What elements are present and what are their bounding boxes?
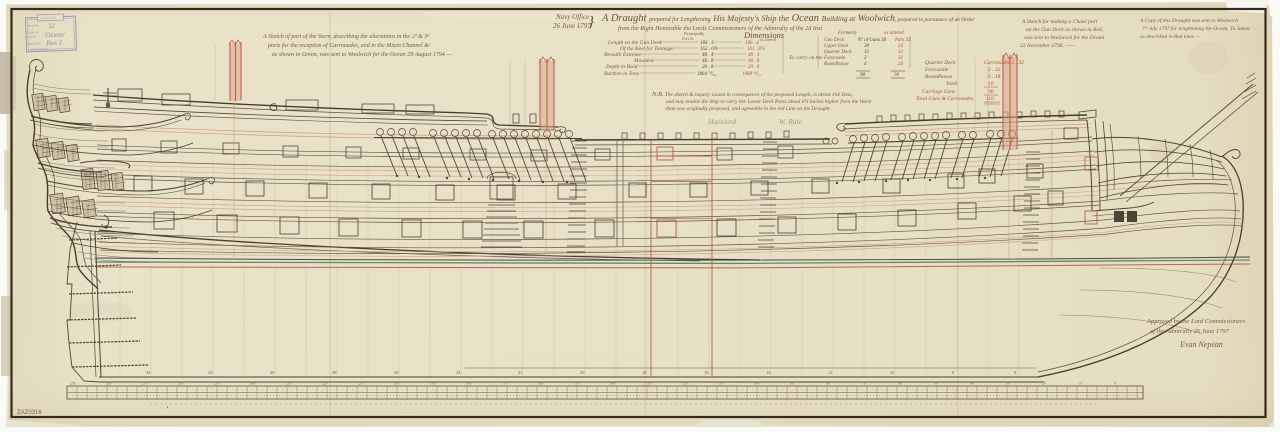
svg-text:Of the Keel for Tonnage: Of the Keel for Tonnage (620, 45, 674, 52)
svg-text:6 . 18: 6 . 18 (988, 74, 1001, 80)
svg-text:Gun Deck: Gun Deck (824, 38, 845, 43)
svg-text:on the Gun Deck as shown in Re: on the Gun Deck as shown in Red, (1026, 27, 1104, 33)
svg-text:184 . 5: 184 . 5 (700, 41, 714, 46)
svg-text:32: 32 (47, 22, 56, 30)
svg-text:': ' (166, 405, 168, 414)
svg-text:220: 220 (322, 382, 328, 386)
svg-text:0: 0 (1114, 382, 1116, 386)
svg-text:270: 270 (142, 382, 148, 386)
svg-text:98: 98 (860, 73, 866, 78)
svg-text:14: 14 (766, 370, 771, 375)
svg-text:ZAZ0316: ZAZ0316 (17, 410, 42, 416)
svg-text:Quarter Deck: Quarter Deck (824, 50, 852, 55)
svg-text:12: 12 (864, 50, 870, 55)
svg-text:as shown in Green, was sent to: as shown in Green, was sent to Woolwich … (272, 51, 452, 58)
svg-text:Box 1: Box 1 (46, 39, 62, 48)
svg-text:240: 240 (250, 382, 256, 386)
svg-text:140: 140 (610, 382, 616, 386)
svg-text:Roundhouse: Roundhouse (924, 74, 953, 80)
svg-text:W. Rule: W. Rule (779, 117, 803, 126)
svg-text:32: 32 (898, 56, 904, 61)
svg-text:110: 110 (986, 96, 994, 102)
svg-text:48 . 0: 48 . 0 (702, 59, 714, 64)
svg-text:161 . 8⅞: 161 . 8⅞ (747, 47, 765, 52)
svg-text:22 November 1796. ——: 22 November 1796. —— (1020, 43, 1075, 49)
svg-text:70: 70 (862, 382, 866, 386)
svg-text:30: 30 (270, 370, 275, 375)
svg-text:1864 ⁷⁹⁄₉₄: 1864 ⁷⁹⁄₉₄ (697, 71, 716, 77)
svg-text:Burthen in Tons: Burthen in Tons (604, 71, 639, 77)
svg-text:Hanslord: Hanslord (707, 117, 736, 126)
svg-text:Feet In: Feet In (681, 36, 693, 41)
svg-text:than was originally proposed,: than was originally proposed, and agreea… (666, 106, 831, 112)
svg-text:100: 100 (754, 382, 760, 386)
svg-text:12: 12 (898, 50, 904, 55)
svg-text:Neg Size: Neg Size (28, 41, 41, 45)
svg-text:40: 40 (970, 382, 974, 386)
svg-text:48 . 4: 48 . 4 (702, 53, 714, 58)
svg-text:20 . 6: 20 . 6 (702, 65, 714, 70)
svg-text:180: 180 (466, 382, 472, 386)
svg-text:A Sketch for making a Chase po: A Sketch for making a Chase port (1021, 18, 1098, 25)
svg-text:Total: Total (946, 81, 958, 87)
svg-text:CURATOR: CURATOR (40, 16, 56, 21)
svg-text:150: 150 (574, 382, 580, 386)
svg-text:90: 90 (790, 382, 794, 386)
svg-text:152 . 6¾: 152 . 6¾ (700, 47, 718, 52)
svg-text:28: 28 (332, 370, 337, 375)
svg-text:200: 200 (394, 382, 400, 386)
svg-text:280: 280 (106, 382, 112, 386)
svg-text:Carronades 2 . 32: Carronades 2 . 32 (984, 60, 1024, 66)
svg-text:160: 160 (538, 382, 544, 386)
svg-text:170: 170 (502, 382, 508, 386)
svg-text:24: 24 (456, 370, 461, 375)
svg-text:WOOLWICH: WOOLWICH (30, 47, 49, 52)
svg-text:ports for the reception of Car: ports for the reception of Carronades, a… (267, 42, 431, 49)
svg-text:1988 ⁶³⁄₉₄: 1988 ⁶³⁄₉₄ (742, 71, 761, 77)
svg-text:110: 110 (718, 382, 723, 386)
svg-text:20: 20 (580, 370, 585, 375)
svg-text:of the Admiralty 26 June 1797: of the Admiralty 26 June 1797 (1150, 328, 1230, 335)
svg-text:A Sketch of part of the Stern,: A Sketch of part of the Stern, describin… (262, 33, 430, 40)
svg-text:7ᵗʰ July 1797 for lengthening: 7ᵗʰ July 1797 for lengthening the Ocean.… (1142, 25, 1250, 32)
svg-text:Forecastle: Forecastle (924, 67, 949, 73)
svg-text:N.B. The sketch & inquiry iss: N.B. The sketch & inquiry issued in cons… (651, 91, 853, 98)
svg-text:from the Right Honorable the L: from the Right Honorable the Lords Commi… (618, 25, 822, 32)
svg-text:Pdrs 32: Pdrs 32 (894, 38, 911, 43)
svg-text:10: 10 (1078, 382, 1082, 386)
svg-text:290: 290 (70, 382, 76, 386)
svg-text:22: 22 (518, 370, 523, 375)
svg-text:was sent to Woolwich for the O: was sent to Woolwich for the Ocean (1024, 34, 1104, 41)
svg-text:30: 30 (1006, 382, 1010, 386)
svg-text:60: 60 (898, 382, 902, 386)
svg-text:Approved by the Lord Commissio: Approved by the Lord Commissioners (1146, 318, 1246, 325)
svg-text:16: 16 (704, 370, 709, 375)
svg-text:Carriage Guns: Carriage Guns (922, 89, 955, 95)
svg-text:80: 80 (826, 382, 830, 386)
svg-text:Evan Nepean: Evan Nepean (1179, 340, 1223, 349)
svg-text:as described in Red lines —: as described in Red lines — (1140, 34, 1200, 40)
svg-text:Forecastle: Forecastle (823, 56, 846, 61)
svg-text:Formerly: Formerly (837, 31, 858, 36)
svg-text:24: 24 (898, 62, 904, 67)
svg-text:report: report (28, 34, 37, 38)
svg-text:130: 130 (646, 382, 652, 386)
svg-text:48 . 4: 48 . 4 (748, 53, 760, 58)
svg-text:A Copy of this Draught was sen: A Copy of this Draught was sent to Woolw… (1139, 17, 1238, 24)
svg-text:24: 24 (898, 44, 904, 49)
svg-text:250: 250 (214, 382, 220, 386)
svg-text:12: 12 (828, 370, 833, 375)
svg-text:Total Guns & Carronades: Total Guns & Carronades (916, 96, 973, 102)
svg-text:98: 98 (988, 89, 994, 95)
svg-text:26 June 1797: 26 June 1797 (553, 22, 591, 30)
svg-text:Quarter Deck: Quarter Deck (925, 60, 956, 66)
svg-text:260: 260 (178, 382, 184, 386)
svg-text:10: 10 (988, 81, 994, 87)
svg-text:190: 190 (430, 382, 436, 386)
svg-text:20 . 6: 20 . 6 (748, 65, 760, 70)
svg-text:Upper Deck: Upper Deck (824, 44, 849, 49)
svg-text:}: } (588, 14, 594, 30)
svg-text:10: 10 (890, 370, 895, 375)
svg-text:30: 30 (864, 44, 870, 49)
svg-text:26: 26 (394, 370, 399, 375)
svg-text:2 . 32: 2 . 32 (988, 67, 1001, 73)
svg-text:as altered: as altered (884, 31, 904, 36)
svg-text:Navy Office: Navy Office (555, 13, 589, 21)
svg-text:18: 18 (642, 370, 647, 375)
svg-text:as altered: as altered (760, 37, 777, 42)
svg-text:98: 98 (894, 73, 900, 78)
svg-text:Nº of Guns 30: Nº of Guns 30 (857, 37, 887, 43)
svg-text:Roundhouse: Roundhouse (823, 62, 850, 67)
svg-text:210: 210 (358, 382, 364, 386)
svg-text:20: 20 (1042, 382, 1046, 386)
svg-text:50: 50 (934, 382, 938, 386)
svg-text:Neg No.: Neg No. (28, 23, 40, 27)
svg-text:196 . 4: 196 . 4 (745, 41, 759, 46)
svg-text:120: 120 (682, 382, 688, 386)
svg-text:and may enable the Ship to car: and may enable the Ship to carry her Low… (666, 98, 873, 105)
svg-text:48 . 0: 48 . 0 (748, 59, 760, 64)
svg-text:230: 230 (286, 382, 292, 386)
svg-text:32: 32 (208, 370, 213, 375)
svg-text:Depth in Hold: Depth in Hold (605, 64, 638, 70)
svg-text:34: 34 (146, 370, 151, 375)
